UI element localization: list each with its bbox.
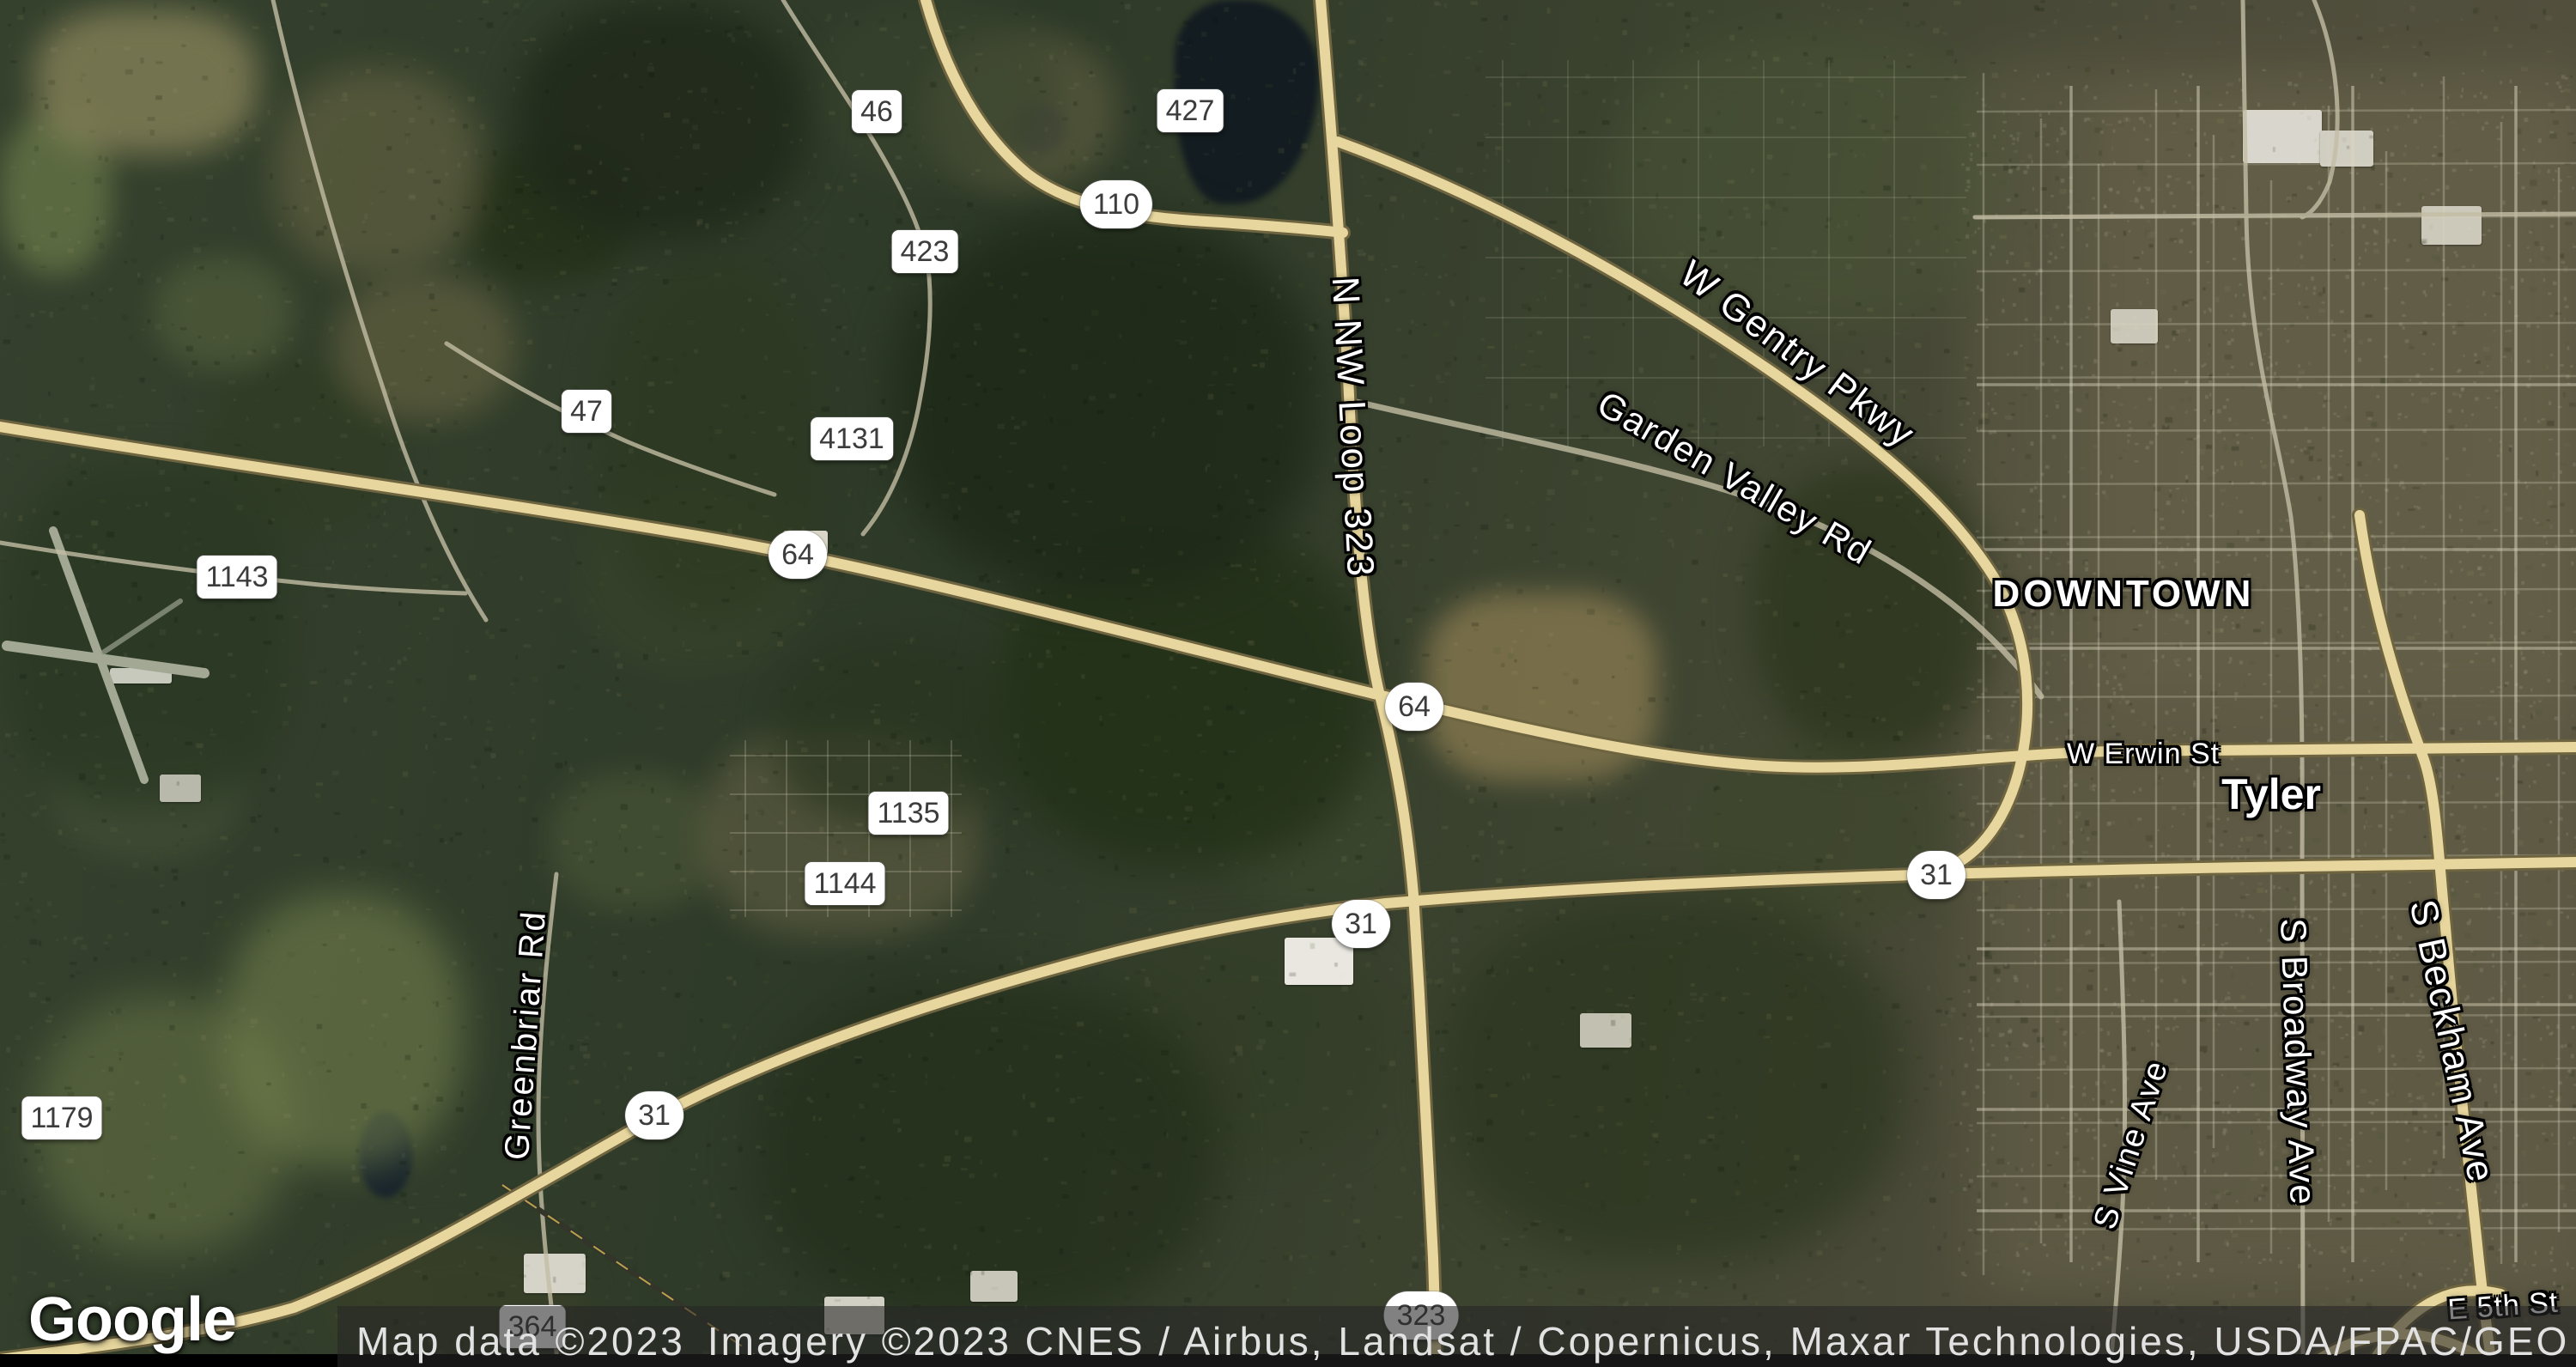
highway-shield-47: 47 [562,390,611,433]
road-network [0,0,2576,1367]
highway-shield-46: 46 [852,90,902,133]
attribution-imagery: Imagery ©2023 CNES / Airbus, Landsat / C… [708,1319,2569,1364]
city-street [1977,110,2576,112]
city-street [1977,642,2576,644]
highway-shield-64: 64 [769,531,827,579]
highway-shield-1179: 1179 [21,1097,101,1139]
road-label-w-erwin-st: W Erwin St [2067,739,2220,769]
city-street [1977,376,2576,378]
city-street [1977,1068,2576,1070]
city-street [1977,908,2576,910]
city-street [1977,696,2576,697]
airport-taxiway [103,601,180,653]
place-label-downtown: DOWNTOWN [1993,575,2255,613]
attribution-map-data: Map data ©2023 [356,1319,685,1364]
highway-shield-1143: 1143 [197,556,276,598]
city-street [1977,1228,2576,1230]
google-logo[interactable]: Google [28,1285,236,1355]
road-label-s-broadway-ave: S Broadway Ave [2275,918,2321,1207]
city-street [1977,483,2576,484]
road-minor [2302,0,2337,217]
city-street [1977,429,2576,431]
highway-shield-4131: 4131 [811,417,893,460]
city-street [1977,163,2576,165]
highway-shield-110: 110 [1080,180,1152,228]
highway-shield-427: 427 [1157,89,1224,132]
highway-shield-31: 31 [1907,851,1965,899]
city-street [1977,270,2576,271]
highway-shield-31: 31 [1332,900,1390,948]
highway-shield-423: 423 [892,230,958,273]
road-minor [273,0,486,620]
highway-shield-1135: 1135 [868,792,948,835]
city-street [1977,323,2576,325]
satellite-imagery [0,0,2576,1367]
attribution-bar: Map data ©2023Imagery ©2023 CNES / Airbu… [337,1306,2576,1367]
map-viewport[interactable]: DOWNTOWNTylerN NW Loop 323W Gentry PkwyG… [0,0,2576,1367]
highway-shield-1144: 1144 [805,862,884,905]
place-label-tyler: Tyler [2221,773,2321,816]
city-street [1977,536,2576,538]
highway-shield-31: 31 [625,1091,683,1139]
highway-shield-64: 64 [1385,683,1443,731]
